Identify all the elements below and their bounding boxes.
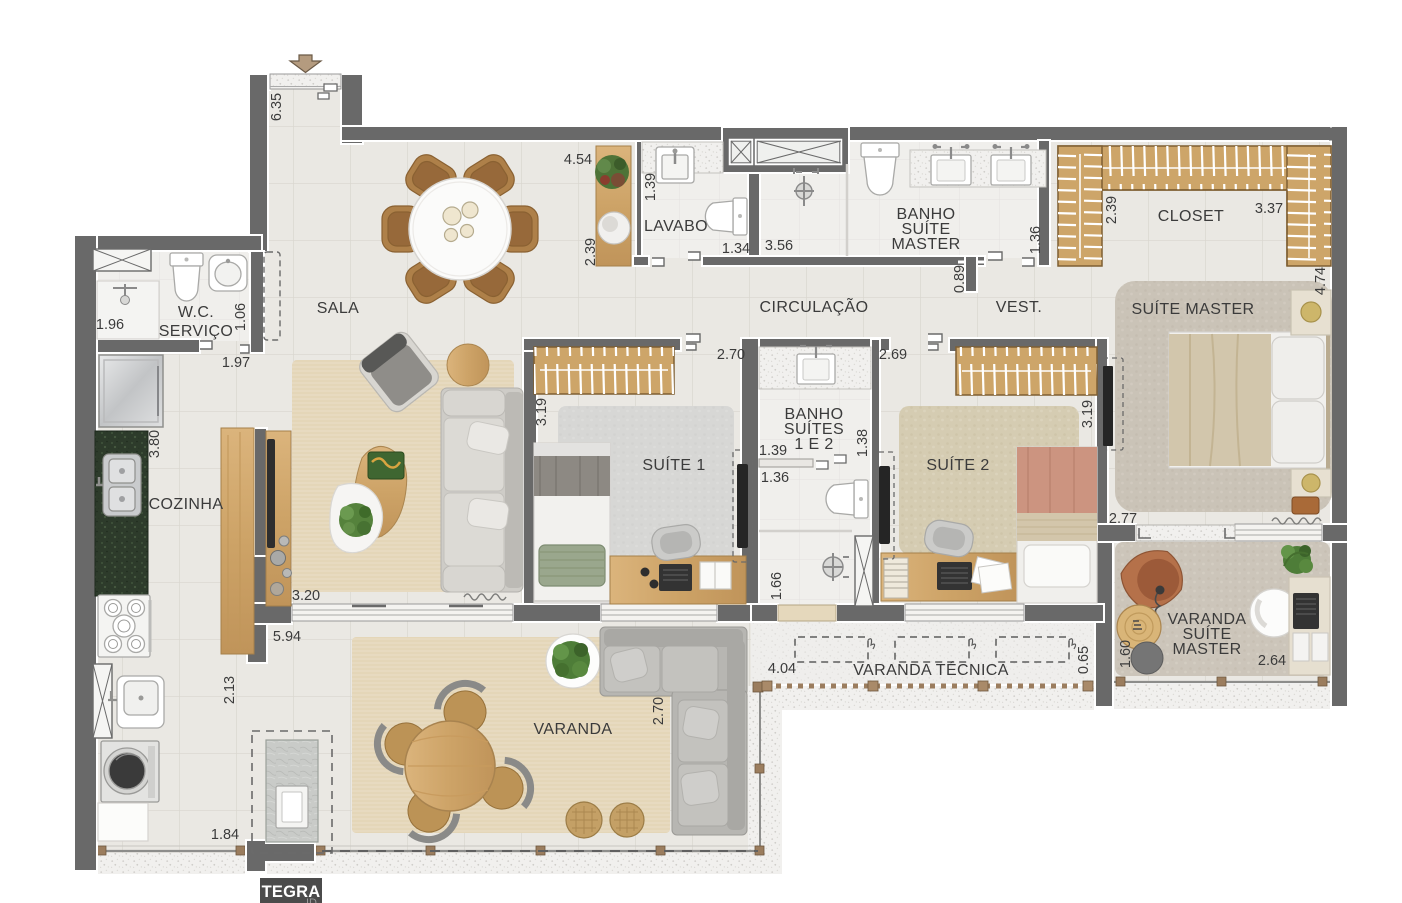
svg-text:VARANDA TÉCNICA: VARANDA TÉCNICA — [853, 660, 1009, 679]
svg-text:1.60: 1.60 — [1118, 640, 1134, 668]
svg-text:5.94: 5.94 — [273, 629, 301, 645]
svg-text:1.36: 1.36 — [761, 470, 789, 486]
svg-text:2.64: 2.64 — [1258, 653, 1286, 669]
svg-text:VARANDA: VARANDA — [534, 721, 613, 738]
svg-text:4.54: 4.54 — [564, 152, 592, 168]
svg-text:SALA: SALA — [317, 300, 360, 317]
svg-text:2.70: 2.70 — [651, 697, 667, 725]
svg-text:1.97: 1.97 — [222, 355, 250, 371]
svg-text:2.70: 2.70 — [717, 347, 745, 363]
svg-text:0.89: 0.89 — [952, 265, 968, 293]
svg-text:1.39: 1.39 — [643, 173, 659, 201]
svg-text:2.69: 2.69 — [879, 347, 907, 363]
svg-text:COZINHA: COZINHA — [149, 496, 224, 513]
svg-text:1.96: 1.96 — [96, 317, 124, 333]
svg-text:2.39: 2.39 — [583, 238, 599, 266]
svg-text:3.56: 3.56 — [765, 238, 793, 254]
svg-text:3.20: 3.20 — [292, 588, 320, 604]
svg-text:2.13: 2.13 — [222, 676, 238, 704]
svg-text:2.39: 2.39 — [1104, 196, 1120, 224]
svg-text:LAVABO: LAVABO — [644, 218, 708, 235]
svg-text:1.34: 1.34 — [722, 241, 750, 257]
svg-text:3.19: 3.19 — [1080, 400, 1096, 428]
svg-text:3.80: 3.80 — [147, 430, 163, 458]
svg-text:3.19: 3.19 — [534, 398, 550, 426]
svg-text:CIRCULAÇÃO: CIRCULAÇÃO — [760, 296, 869, 316]
svg-text:4.04: 4.04 — [768, 661, 796, 677]
svg-text:SERVIÇO: SERVIÇO — [159, 323, 234, 340]
svg-text:1.38: 1.38 — [855, 429, 871, 457]
svg-text:1 E 2: 1 E 2 — [794, 436, 833, 453]
svg-text:3.37: 3.37 — [1255, 201, 1283, 217]
svg-text:0.65: 0.65 — [1076, 646, 1092, 674]
svg-text:2.77: 2.77 — [1109, 511, 1137, 527]
svg-text:MASTER: MASTER — [1172, 641, 1241, 658]
svg-text:1.84: 1.84 — [211, 827, 239, 843]
svg-text:W.C.: W.C. — [178, 304, 214, 321]
svg-text:MASTER: MASTER — [891, 236, 960, 253]
svg-text:4.74: 4.74 — [1313, 267, 1329, 295]
svg-text:SUÍTE 2: SUÍTE 2 — [926, 455, 989, 474]
svg-text:SUÍTE MASTER: SUÍTE MASTER — [1131, 299, 1254, 318]
svg-text:SUÍTE 1: SUÍTE 1 — [642, 455, 705, 474]
svg-text:VEST.: VEST. — [996, 299, 1042, 316]
svg-text:1.66: 1.66 — [769, 572, 785, 600]
svg-text:ID: ID — [306, 897, 317, 903]
svg-text:6.35: 6.35 — [269, 93, 285, 121]
svg-text:CLOSET: CLOSET — [1158, 208, 1224, 225]
svg-text:1.06: 1.06 — [233, 303, 249, 331]
svg-text:1.36: 1.36 — [1028, 226, 1044, 254]
svg-text:1.39: 1.39 — [759, 443, 787, 459]
